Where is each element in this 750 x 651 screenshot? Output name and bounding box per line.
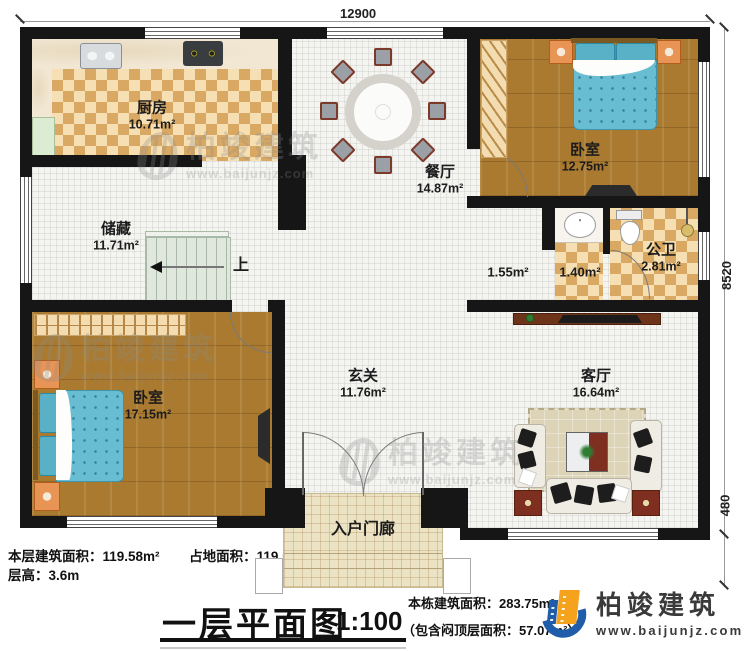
bedroom-top-label: 卧室 12.75m² (562, 143, 609, 174)
nightstand (34, 482, 60, 511)
chair (320, 102, 338, 120)
bath-area: 2.81m² (641, 259, 681, 273)
brand-name: 柏竣建筑 (596, 592, 720, 618)
storage-area: 11.71m² (93, 238, 139, 252)
kitchen-label: 厨房 10.71m² (129, 101, 176, 132)
sofa-cushion (634, 455, 653, 474)
wall (278, 27, 292, 170)
bed-headboard (33, 390, 38, 480)
wall (272, 312, 285, 516)
window (508, 528, 658, 540)
floor-height-text: 层高：3.6m (8, 564, 79, 584)
plan-scale: 1:100 (336, 606, 403, 637)
kitchen-counter-side (32, 69, 52, 117)
top-dimension-line (20, 21, 710, 22)
nightstand (657, 40, 681, 64)
stair-direction-line (160, 266, 224, 268)
bathroom-sink (564, 212, 596, 238)
shower-head (681, 224, 694, 237)
window (327, 27, 443, 39)
dining-area: 14.87m² (417, 181, 464, 195)
wall (467, 196, 710, 208)
living-name: 客厅 (573, 369, 620, 386)
porch-step-line (284, 568, 442, 569)
window (698, 62, 710, 177)
kitchen-area: 10.71m² (129, 117, 176, 131)
wall (20, 155, 202, 167)
right-dimension-label: 8520 (719, 261, 734, 290)
kitchen-sink (80, 43, 122, 69)
porch-step-line (284, 553, 442, 554)
nightstand (34, 360, 60, 389)
bedroom-bottom-name: 卧室 (125, 391, 172, 408)
chair (374, 48, 392, 66)
wall (467, 300, 710, 312)
tv (258, 408, 270, 464)
lobby-area-label: 1.55m² (487, 265, 528, 280)
dimension-tick (15, 14, 25, 24)
window (20, 177, 32, 283)
kitchen-counter (32, 39, 278, 69)
porch-side-step (255, 558, 283, 594)
floor-plan-canvas: 12900 8520 480 上 (0, 0, 750, 651)
closet (481, 40, 507, 158)
window (698, 232, 710, 280)
dining-label: 餐厅 14.87m² (417, 165, 464, 196)
chair (374, 156, 392, 174)
brand-logo-mark (540, 588, 592, 644)
wall (20, 300, 232, 312)
chair (428, 102, 446, 120)
bedroom-top-area: 12.75m² (562, 159, 609, 173)
bedroom-top-name: 卧室 (562, 143, 609, 160)
wall (542, 208, 555, 250)
title-underline-light (160, 647, 406, 649)
entry-door-leaf (422, 432, 424, 495)
brand-logo-building (556, 590, 580, 624)
window (145, 27, 240, 39)
wardrobe (34, 314, 186, 336)
kitchen-name: 厨房 (129, 101, 176, 118)
dimension-tick (705, 14, 715, 24)
toilet-tank (616, 210, 642, 220)
plant (525, 313, 535, 323)
title-underline (160, 638, 406, 642)
hall-area: 11.76m² (340, 385, 386, 399)
living-label: 客厅 16.64m² (573, 369, 620, 400)
sofa-cushion (574, 485, 595, 506)
porch-pillar (265, 488, 305, 528)
bed-sheet (56, 390, 72, 480)
stove (183, 41, 223, 66)
hall-label: 玄关 11.76m² (340, 369, 386, 400)
dining-table (345, 74, 421, 150)
porch-side-step (443, 558, 471, 594)
window (67, 516, 217, 528)
wall (268, 300, 285, 312)
tv (585, 185, 637, 196)
bath-label: 公卫 2.81m² (641, 243, 681, 274)
stair-arrow (150, 261, 162, 273)
wall (278, 155, 306, 230)
top-dimension-label: 12900 (340, 6, 376, 21)
bedroom-bottom-area: 17.15m² (125, 407, 172, 421)
bath-name: 公卫 (641, 243, 681, 260)
plant (578, 443, 596, 461)
porch-pillar (421, 488, 468, 528)
hall-name: 玄关 (340, 369, 386, 386)
brand-url: www.baijunjz.com (596, 624, 743, 637)
dining-name: 餐厅 (417, 165, 464, 182)
porch-label: 入户门廊 (331, 521, 395, 539)
side-table (514, 490, 542, 516)
floor-area-text: 本层建筑面积：119.58m² (8, 549, 160, 564)
wall (603, 208, 610, 254)
bedroom-bottom-label: 卧室 17.15m² (125, 391, 172, 422)
tv (558, 315, 642, 323)
storage-label: 储藏 11.71m² (93, 222, 139, 253)
porch-floor (283, 493, 443, 588)
wall (467, 27, 480, 149)
living-area: 16.64m² (573, 385, 620, 399)
total-area-text: 本栋建筑面积：283.75m² (408, 593, 555, 612)
porch-dimension-label: 480 (717, 495, 732, 517)
nightstand (549, 40, 573, 64)
entry-door-leaf (302, 432, 304, 495)
storage-name: 储藏 (93, 222, 139, 239)
side-table (632, 490, 660, 516)
vestibule-area-label: 1.40m² (559, 265, 600, 280)
stairs-up-label: 上 (233, 257, 249, 275)
shower-hose (686, 208, 688, 224)
